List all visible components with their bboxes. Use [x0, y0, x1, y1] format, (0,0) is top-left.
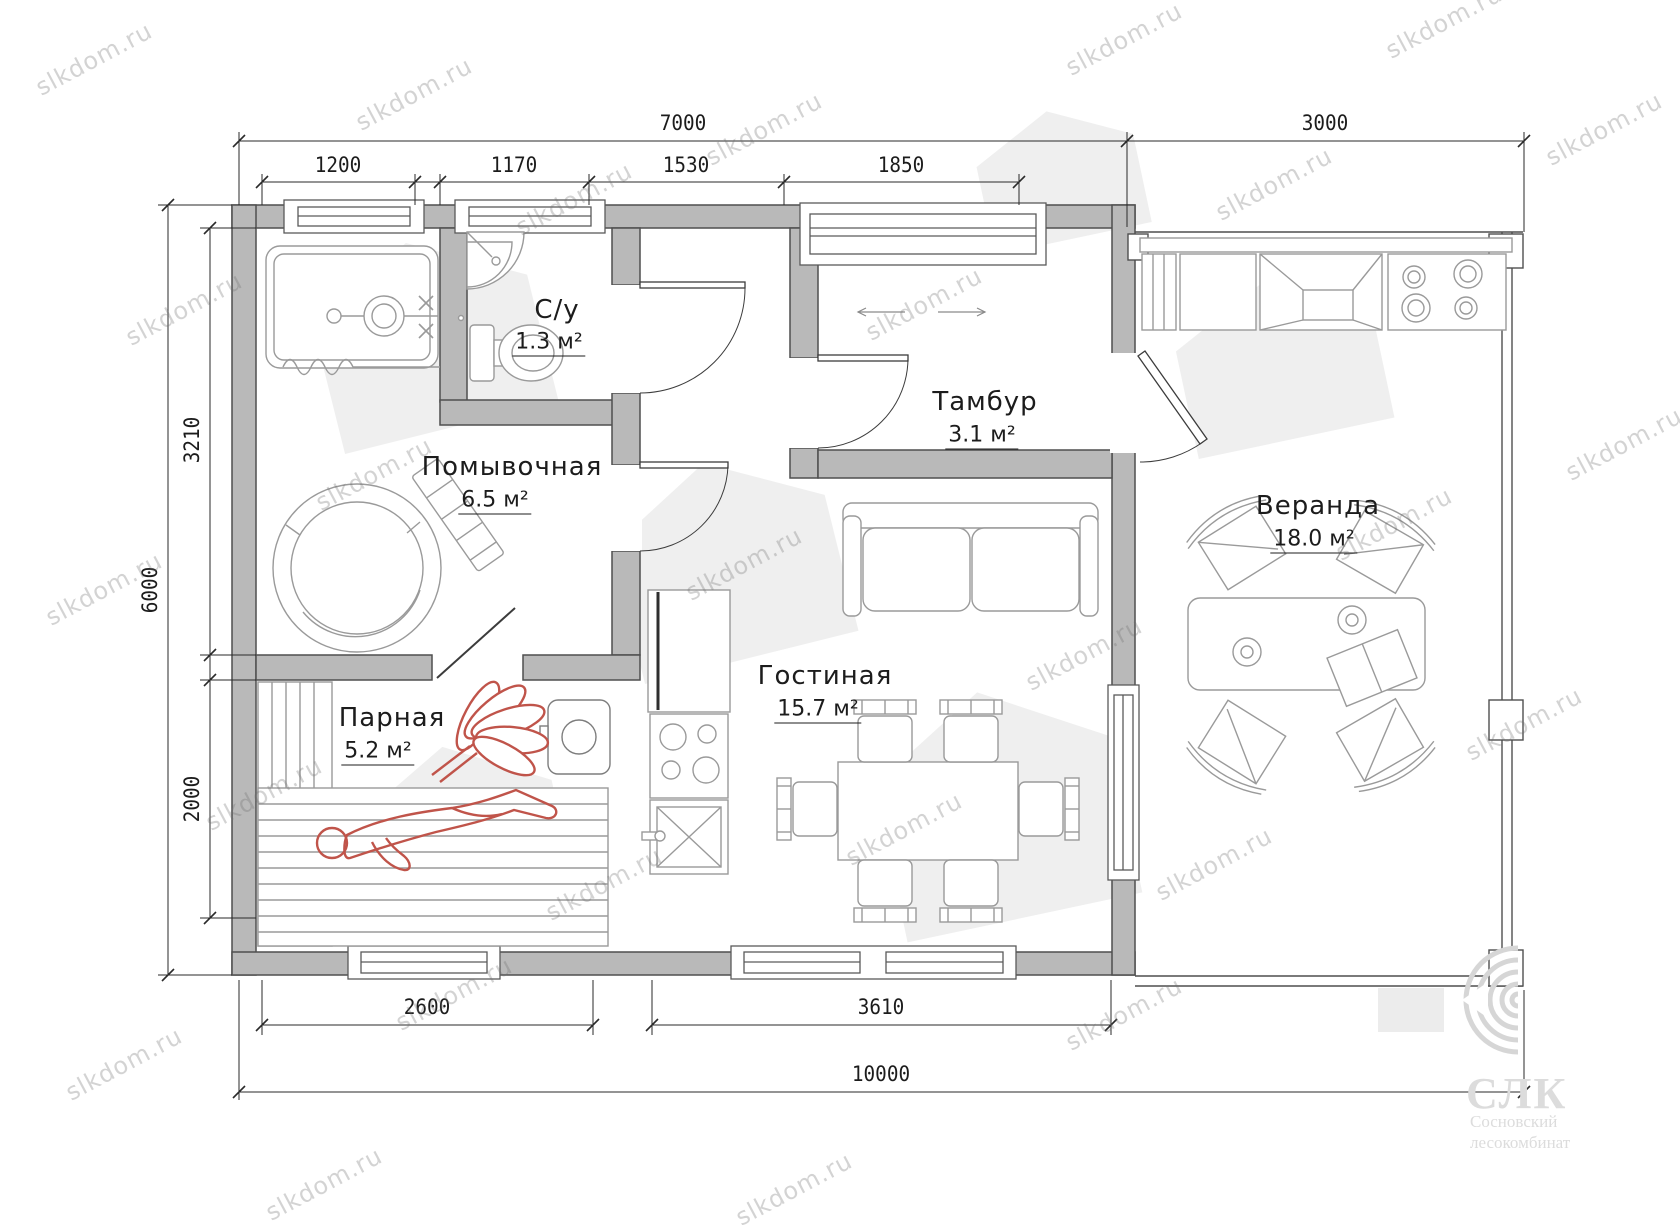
veranda-counter — [1140, 238, 1512, 330]
chair — [1019, 778, 1079, 840]
room-area-wc: 1.3 м² — [512, 330, 585, 357]
dim-1530: 1530 — [663, 153, 710, 177]
logo-line1: Сосновский — [1470, 1112, 1557, 1132]
wall-tambour-left-lower — [790, 448, 818, 478]
round-tub — [273, 484, 441, 652]
window-sauna — [348, 946, 500, 979]
door-leaf-wc — [640, 282, 745, 288]
chair — [940, 860, 1002, 922]
dim-10000: 10000 — [852, 1062, 910, 1086]
veranda-stove — [1388, 254, 1506, 330]
floor-plan-drawing: С/у 1.3 м² Помывочная 6.5 м² Тамбур 3.1 … — [0, 0, 1680, 1225]
room-label-living: Гостиная — [758, 661, 893, 691]
door-arc-entry — [1140, 442, 1203, 462]
room-area-sauna: 5.2 м² — [341, 739, 414, 766]
room-label-tambour: Тамбур — [932, 387, 1037, 417]
dim-1170: 1170 — [491, 153, 538, 177]
armchair — [1326, 693, 1441, 800]
window-wc — [455, 200, 605, 233]
chair — [854, 860, 916, 922]
veranda-table — [1188, 598, 1425, 706]
logo-line2: лесокомбинат — [1470, 1133, 1570, 1153]
room-label-washroom: Помывочная — [422, 452, 603, 482]
door-arc-tambour — [818, 358, 908, 448]
room-label-wc: С/у — [534, 295, 579, 325]
dim-2600: 2600 — [404, 995, 451, 1019]
chair — [854, 700, 916, 762]
dim-3000: 3000 — [1302, 111, 1349, 135]
window-tambour — [800, 203, 1046, 316]
dim-1850: 1850 — [878, 153, 925, 177]
room-label-sauna: Парная — [339, 703, 446, 733]
door-leaf-tambour — [818, 355, 908, 361]
window-living — [731, 946, 1016, 979]
armchair — [1180, 694, 1296, 803]
dim-6000: 6000 — [138, 567, 162, 614]
wall-wc-bottom — [440, 400, 614, 425]
room-area-living: 15.7 м² — [774, 697, 861, 724]
shower-tray — [266, 246, 438, 368]
floor-plan-canvas — [0, 0, 1680, 1225]
dim-3610: 3610 — [858, 995, 905, 1019]
kitchen-sink — [642, 800, 728, 874]
veranda-hood — [1260, 254, 1382, 330]
wall-hall-1 — [612, 228, 640, 285]
wall-hall-3 — [612, 551, 640, 655]
sauna-heater — [540, 700, 610, 774]
kitchen-counter — [648, 590, 730, 712]
room-area-washroom: 6.5 м² — [458, 488, 531, 515]
room-area-tambour: 3.1 м² — [945, 423, 1018, 450]
dim-1200: 1200 — [315, 153, 362, 177]
room-area-veranda: 18.0 м² — [1270, 527, 1357, 554]
sliding-arrows — [858, 308, 985, 316]
kitchen-stove — [650, 714, 728, 798]
wall-tambour-bottom — [818, 450, 1112, 478]
dim-7000: 7000 — [660, 111, 707, 135]
dim-3210: 3210 — [180, 417, 204, 464]
chair — [777, 778, 837, 840]
dining-table — [838, 762, 1018, 860]
dim-2000: 2000 — [180, 776, 204, 823]
wall-sauna-partition-left — [256, 655, 432, 680]
room-label-veranda: Веранда — [1256, 491, 1380, 521]
wall-sauna-partition-right — [523, 655, 640, 680]
company-logo-mark — [1378, 948, 1518, 1052]
window-door-to-veranda — [1108, 685, 1139, 880]
wall-hall-2 — [612, 393, 640, 465]
wall-wc-left — [440, 228, 467, 402]
sofa — [843, 503, 1098, 616]
door-leaf-living — [640, 462, 728, 468]
door-arc-wc — [640, 288, 745, 393]
veranda-post-mid — [1489, 700, 1523, 740]
window-washroom — [284, 200, 424, 233]
chair — [940, 700, 1002, 762]
wall-left — [232, 205, 256, 975]
door-leaf-sauna — [437, 608, 515, 678]
